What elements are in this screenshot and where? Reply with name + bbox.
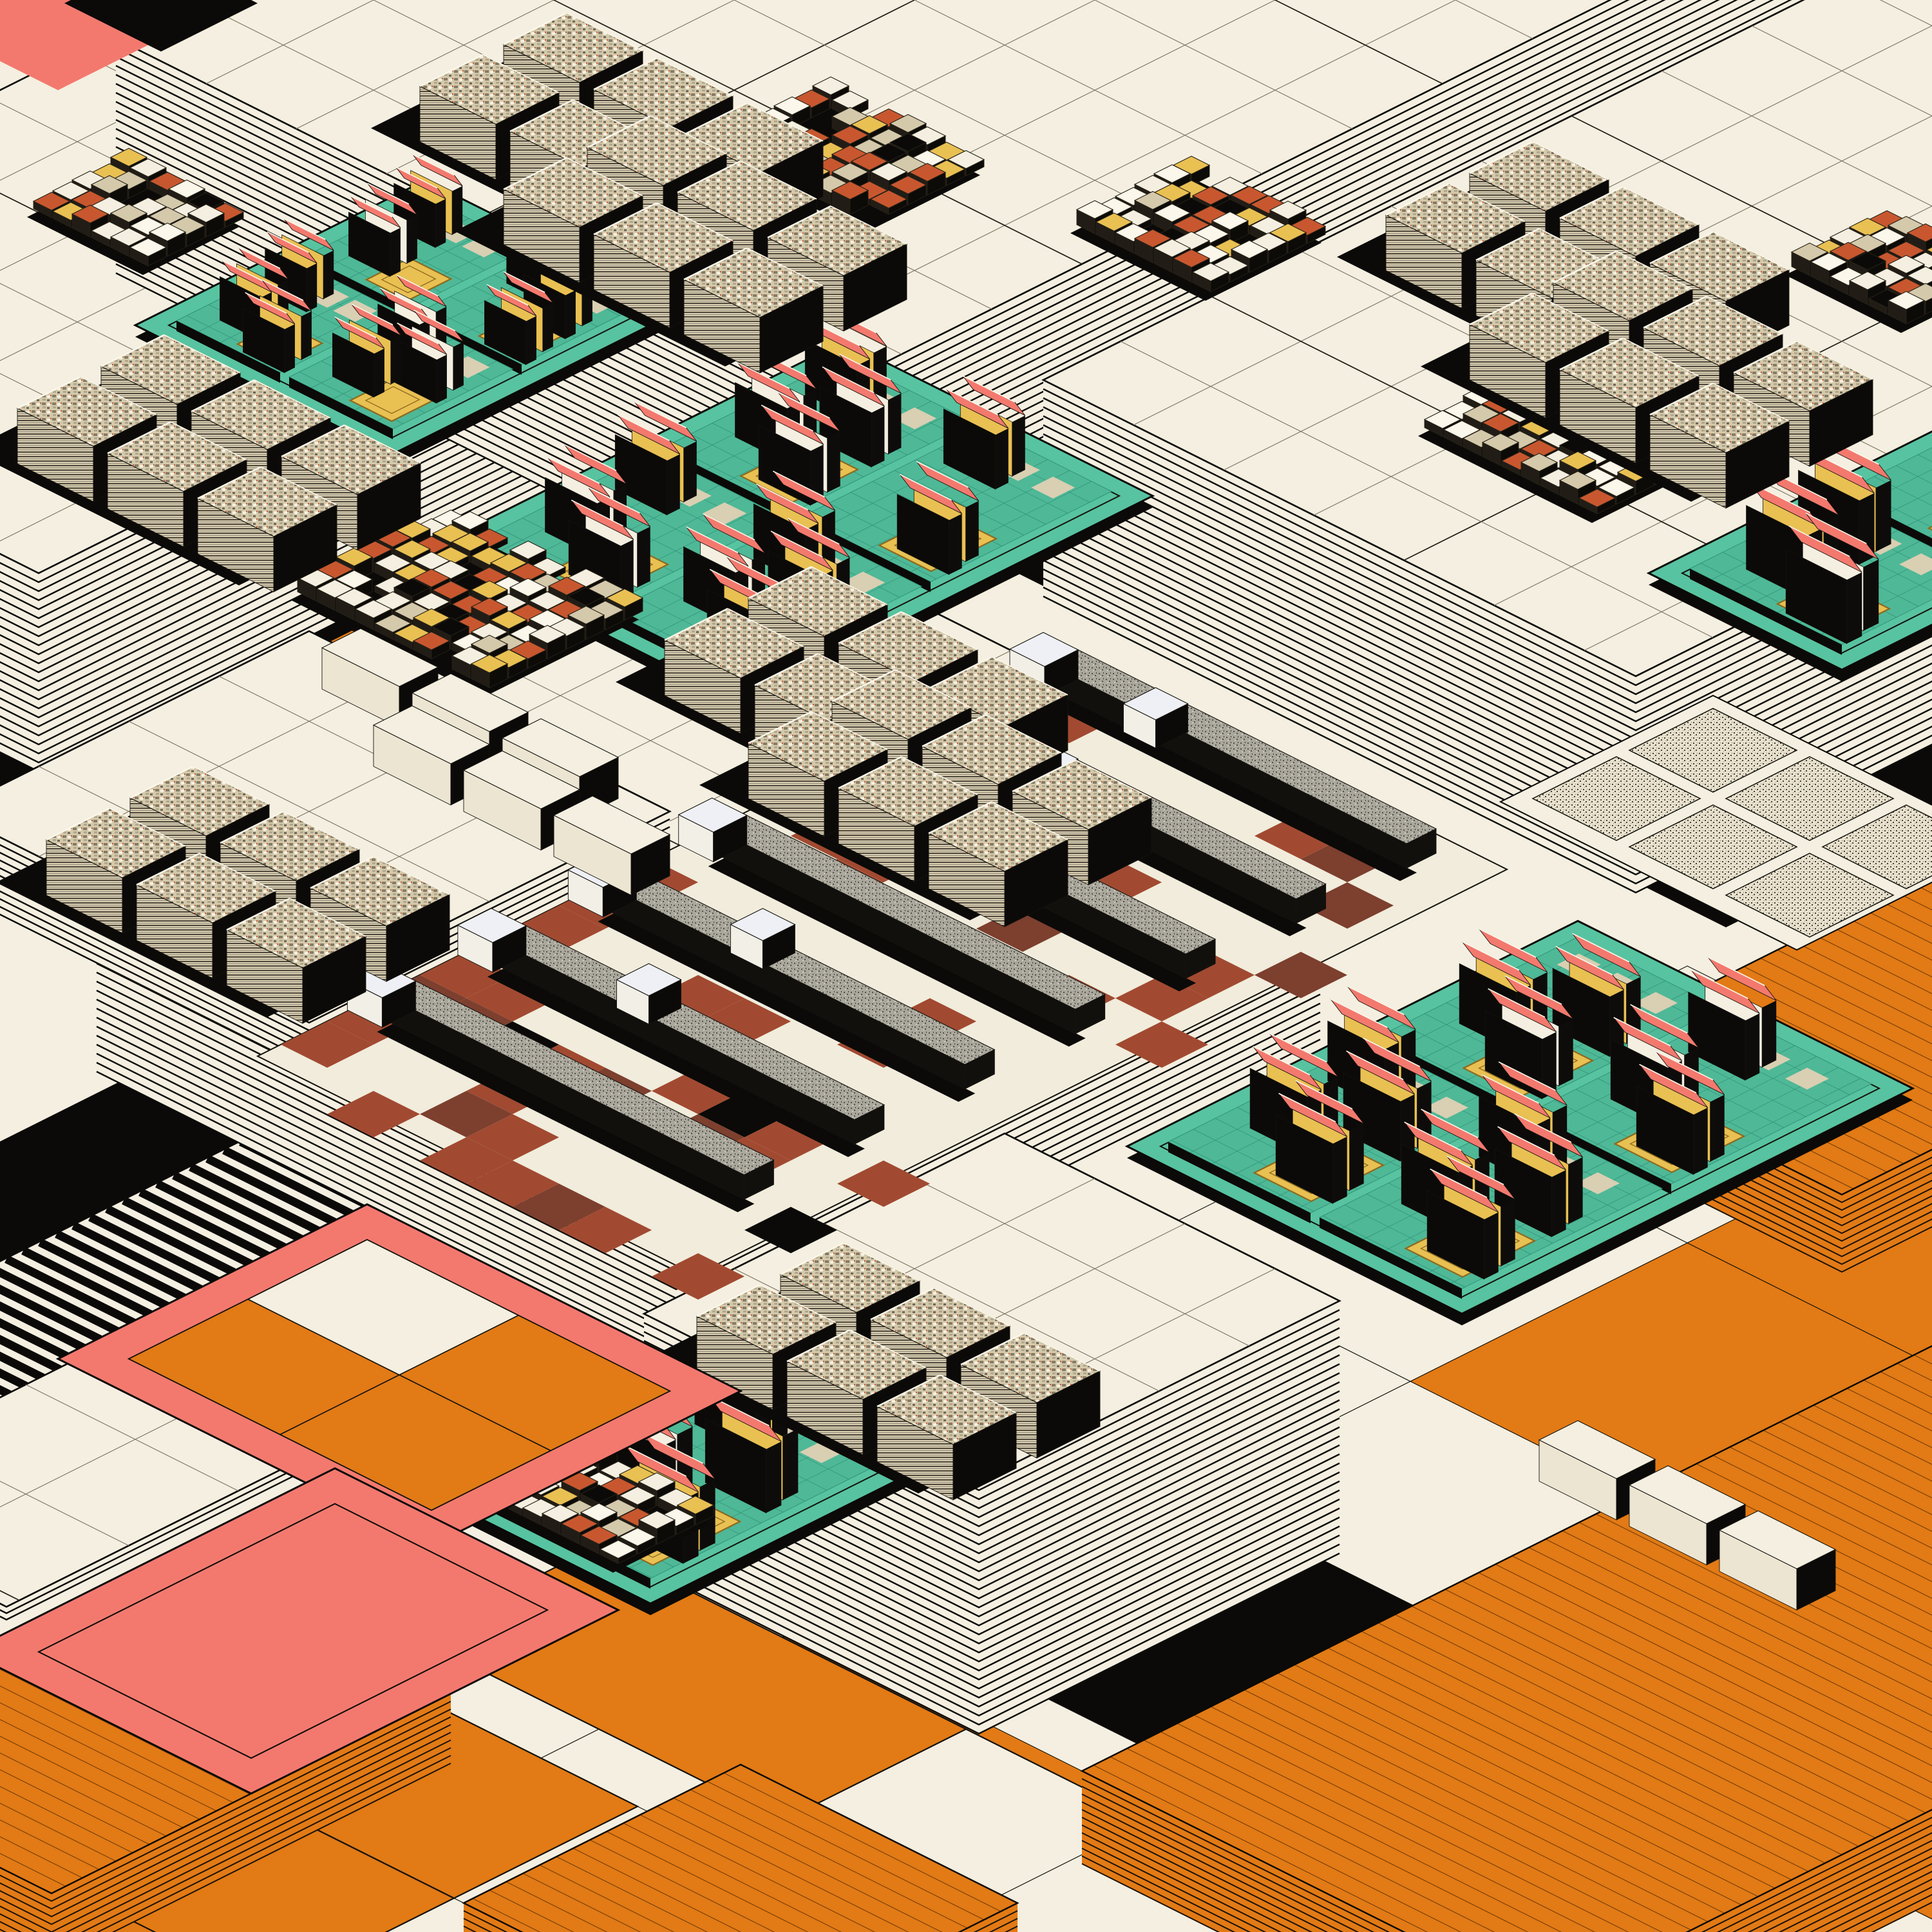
slab-side xyxy=(435,199,446,248)
slab-side xyxy=(667,454,680,515)
slab-side xyxy=(766,1441,782,1513)
slab-side xyxy=(966,501,979,562)
slab-side xyxy=(1350,1124,1364,1191)
slab-side xyxy=(1559,1019,1573,1086)
slab-side xyxy=(783,1428,799,1500)
slab-side xyxy=(307,263,317,312)
slab-side xyxy=(638,527,650,588)
slab-side xyxy=(565,290,576,339)
isometric-city-artwork xyxy=(0,0,1932,1932)
slab-side xyxy=(949,514,962,575)
slab-side xyxy=(285,324,295,373)
slab-side xyxy=(1333,1137,1347,1204)
slab-side xyxy=(526,316,536,365)
slab-side xyxy=(1569,1157,1583,1224)
slab-side xyxy=(391,336,401,384)
slab-side xyxy=(453,342,464,391)
slab-side xyxy=(828,431,840,493)
slab-side xyxy=(1762,1001,1776,1068)
slab-side xyxy=(452,186,462,235)
slab-side xyxy=(1694,1108,1708,1175)
slab-side xyxy=(437,355,447,404)
slab-side xyxy=(407,215,417,264)
slab-side xyxy=(888,393,901,455)
slab-side xyxy=(301,311,312,360)
slab-side xyxy=(996,428,1009,489)
slab-side xyxy=(1012,415,1025,477)
slab-side xyxy=(1745,1014,1759,1081)
slab-side xyxy=(1484,1212,1499,1279)
slab-side xyxy=(1876,480,1891,552)
slab-side xyxy=(323,251,334,299)
artwork-canvas xyxy=(0,0,1932,1932)
slab-side xyxy=(1847,573,1862,644)
slab-side xyxy=(1710,1095,1725,1162)
slab-side xyxy=(1552,1170,1566,1237)
slab-side xyxy=(390,228,401,277)
slab-side xyxy=(1501,1199,1515,1266)
slab-side xyxy=(374,348,384,397)
slab-side xyxy=(684,441,697,502)
slab-side xyxy=(543,303,553,352)
slab-side xyxy=(871,406,884,468)
slab-side xyxy=(1864,560,1879,631)
